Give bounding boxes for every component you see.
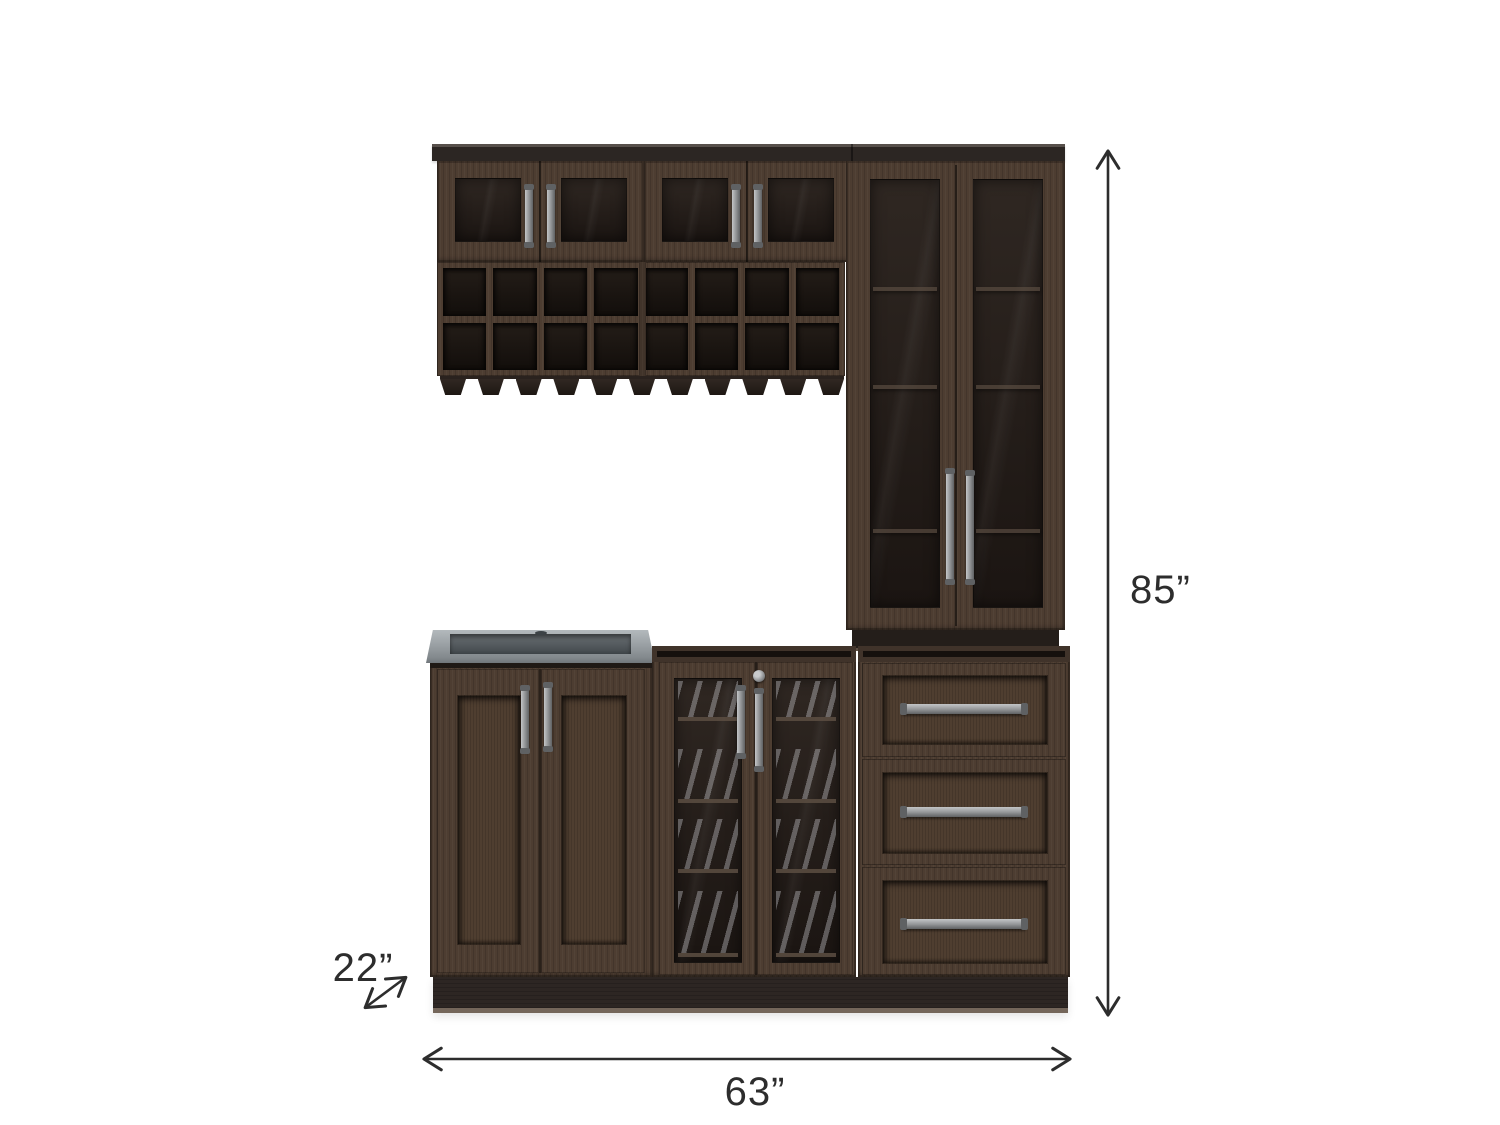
door-handle: [737, 687, 745, 757]
door-panel: [457, 695, 521, 945]
stemware-slot: [553, 379, 579, 395]
toe-kick: [433, 977, 1068, 1013]
stemware-slot: [667, 379, 693, 395]
wine-cubby: [796, 323, 839, 371]
glass-door: [757, 662, 853, 975]
glass-pane: [870, 179, 940, 608]
shelf-line: [976, 385, 1040, 389]
wall-cabinet-right: [644, 161, 852, 262]
wine-cubby: [493, 268, 536, 316]
drawer: [862, 663, 1066, 757]
drawer: [862, 759, 1066, 865]
shelf-line: [976, 529, 1040, 533]
depth-dimension-label: 22”: [318, 948, 408, 988]
wine-cubby: [443, 268, 486, 316]
stemware-slot: [440, 379, 466, 395]
door-handle: [521, 687, 529, 752]
sink: [426, 630, 655, 663]
glass-pane: [772, 678, 840, 963]
door-panel: [561, 695, 627, 945]
wine-cubby: [695, 268, 738, 316]
wine-slat-row: [678, 749, 738, 803]
open-top-recess: [652, 646, 856, 662]
wall-cabinet-left: [437, 161, 644, 262]
drawer-handle: [902, 704, 1026, 714]
shelf-line: [873, 287, 937, 291]
door-handle: [547, 186, 555, 246]
width-dimension-label: 63”: [700, 1072, 810, 1112]
cabinet-door: [541, 669, 645, 973]
lock-icon: [753, 670, 765, 682]
wine-slat-row: [678, 891, 738, 957]
stemware-rack: [440, 376, 844, 393]
glass-pane: [662, 178, 728, 242]
shelf-line: [873, 385, 937, 389]
stemware-slot: [591, 379, 617, 395]
door-handle: [754, 186, 762, 246]
wine-cubby: [594, 268, 637, 316]
wine-slat-row: [776, 819, 836, 873]
drawer: [862, 867, 1066, 975]
shelf-line: [976, 287, 1040, 291]
door-seam: [746, 161, 748, 262]
wine-slat-row: [776, 681, 836, 721]
door-handle: [946, 470, 954, 583]
tall-cabinet: [846, 161, 1065, 630]
glass-pane: [455, 178, 521, 242]
stemware-slot: [478, 379, 504, 395]
wine-cubby: [745, 323, 788, 371]
hutch-crown: [432, 144, 1065, 161]
product-dimension-diagram: 85” 63” 22”: [0, 0, 1500, 1125]
door-handle: [755, 690, 763, 770]
wine-cubby: [796, 268, 839, 316]
wine-cubby: [745, 268, 788, 316]
wine-cubby: [493, 323, 536, 371]
shelf-line: [873, 529, 937, 533]
sink-basin: [450, 634, 631, 654]
wine-cubby: [695, 323, 738, 371]
crown-seam: [851, 144, 853, 161]
stemware-slot: [742, 379, 768, 395]
door-handle: [732, 186, 740, 246]
stemware-slot: [818, 379, 844, 395]
glass-pane: [768, 178, 834, 242]
wine-cubby: [594, 323, 637, 371]
wine-cubby: [443, 323, 486, 371]
door-seam: [955, 165, 957, 626]
wine-cubby: [544, 323, 587, 371]
door-seam: [539, 161, 541, 262]
door-handle: [544, 684, 552, 750]
drawer-handle: [902, 807, 1026, 817]
wine-slat-row: [678, 681, 738, 721]
height-dimension-label: 85”: [1130, 570, 1191, 610]
wine-base-cabinet: [652, 646, 856, 977]
wine-cubby: [645, 268, 688, 316]
faucet-hole: [535, 631, 547, 635]
sink-cabinet: [430, 663, 652, 977]
open-top-recess: [858, 646, 1070, 662]
glass-pane: [674, 678, 742, 963]
wine-slat-row: [776, 891, 836, 957]
glass-pane: [561, 178, 627, 242]
door-handle: [525, 186, 533, 246]
stemware-slot: [516, 379, 542, 395]
door-handle: [966, 472, 974, 583]
stemware-slot: [705, 379, 731, 395]
door-seam: [539, 669, 541, 973]
wine-rack-center-divider: [639, 262, 646, 376]
wine-cubby: [544, 268, 587, 316]
drawer-cabinet: [858, 646, 1070, 977]
stemware-slot: [780, 379, 806, 395]
glass-pane: [973, 179, 1043, 608]
drawer-handle: [902, 919, 1026, 929]
wine-slat-row: [776, 749, 836, 803]
wine-slat-row: [678, 819, 738, 873]
wine-cubby: [645, 323, 688, 371]
stemware-slot: [629, 379, 655, 395]
